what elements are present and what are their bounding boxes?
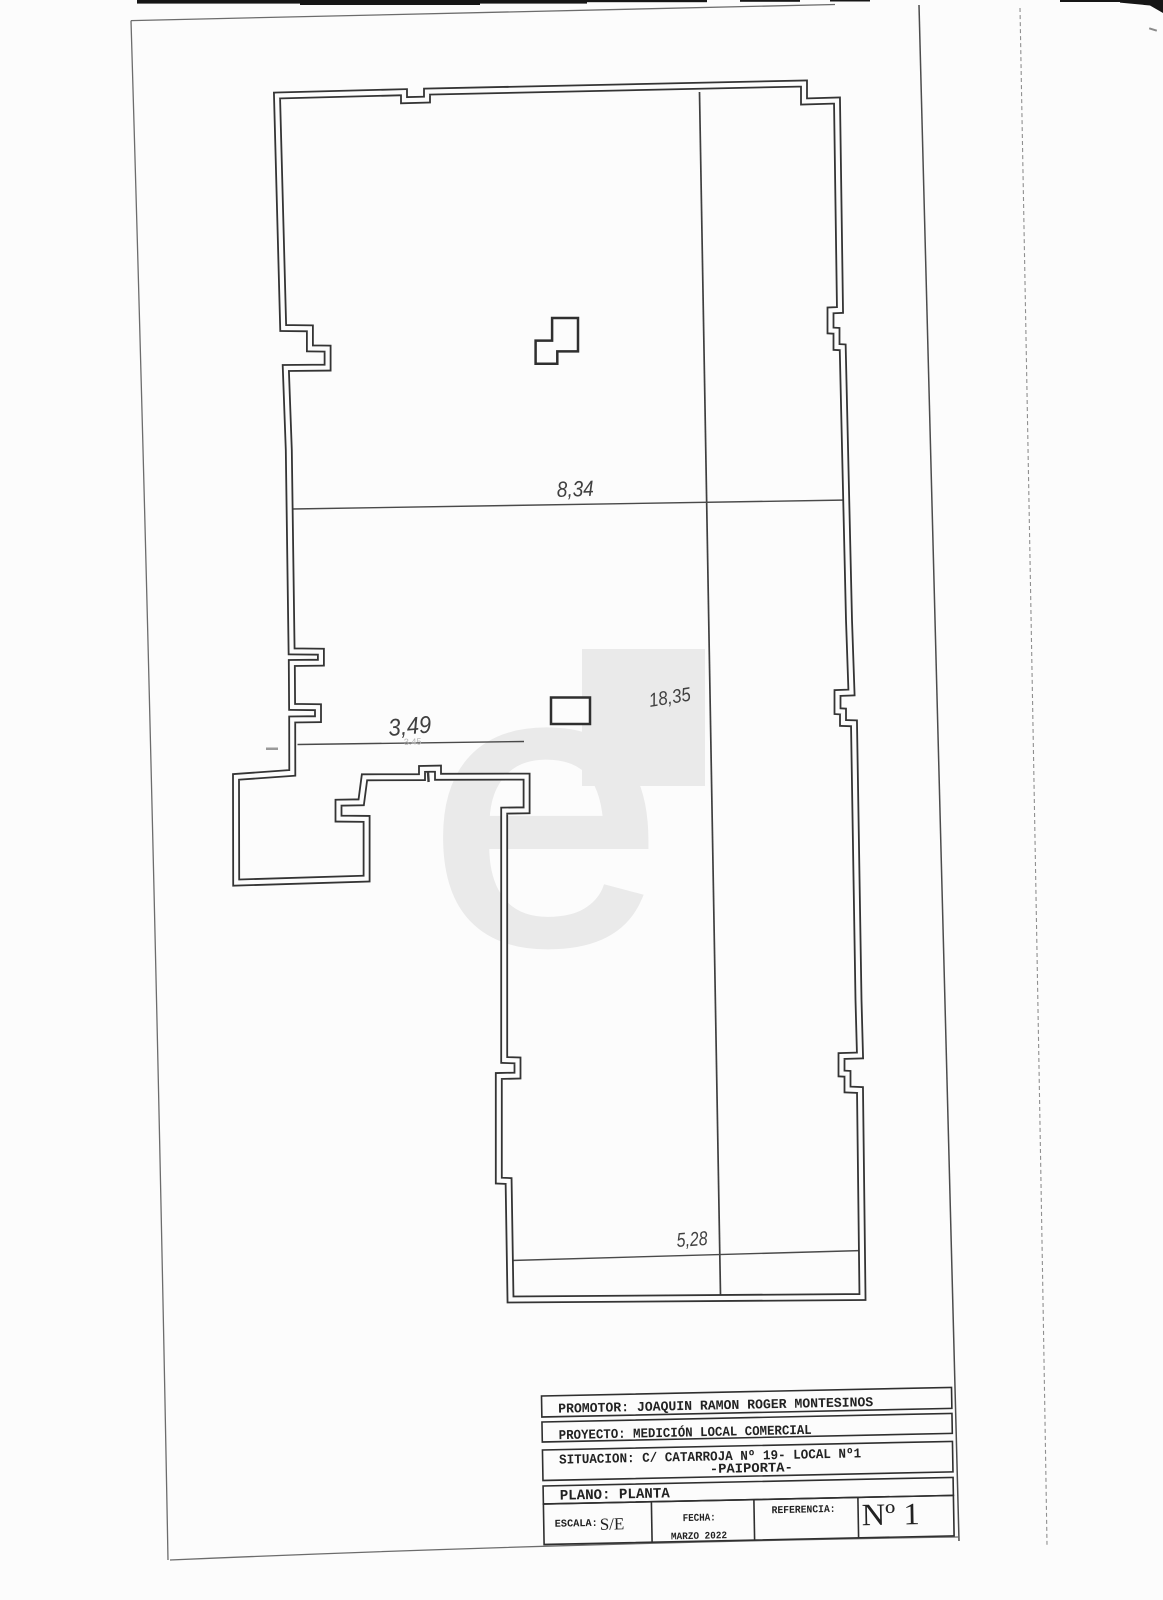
svg-text:5,28: 5,28: [676, 1228, 708, 1252]
svg-text:PLANO: PLANTA: PLANO: PLANTA: [560, 1486, 671, 1504]
svg-text:MARZO 2022: MARZO 2022: [671, 1531, 727, 1543]
svg-text:ESCALA:: ESCALA:: [555, 1518, 598, 1531]
svg-text:REFERENCIA:: REFERENCIA:: [771, 1504, 835, 1517]
svg-text:e: e: [429, 588, 664, 1026]
svg-text:S/E: S/E: [600, 1514, 625, 1534]
svg-text:8,34: 8,34: [556, 476, 594, 502]
svg-text:Nº 1: Nº 1: [861, 1496, 920, 1532]
svg-text:-PAIPORTA-: -PAIPORTA-: [710, 1461, 793, 1478]
svg-text:FECHA:: FECHA:: [683, 1512, 716, 1525]
svg-text:3.45: 3.45: [404, 736, 422, 747]
